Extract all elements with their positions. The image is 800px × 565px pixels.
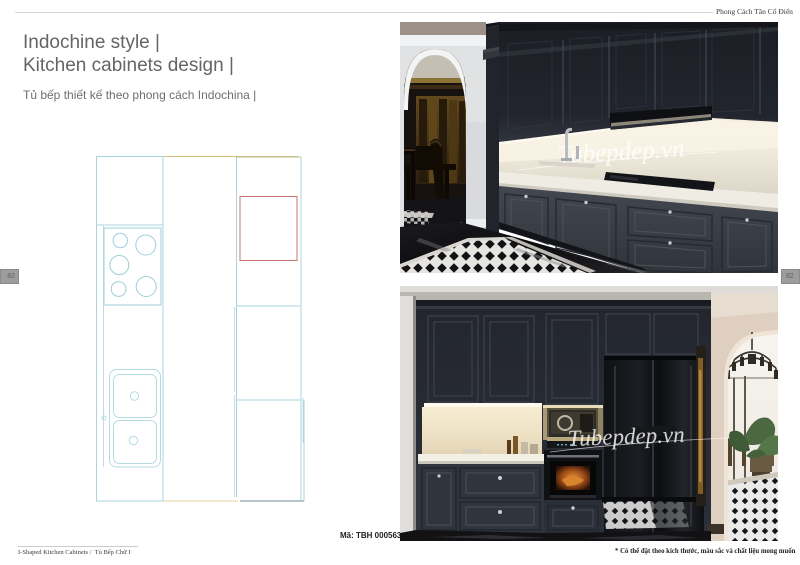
svg-text:Tubepdep.vn: Tubepdep.vn	[567, 422, 685, 451]
